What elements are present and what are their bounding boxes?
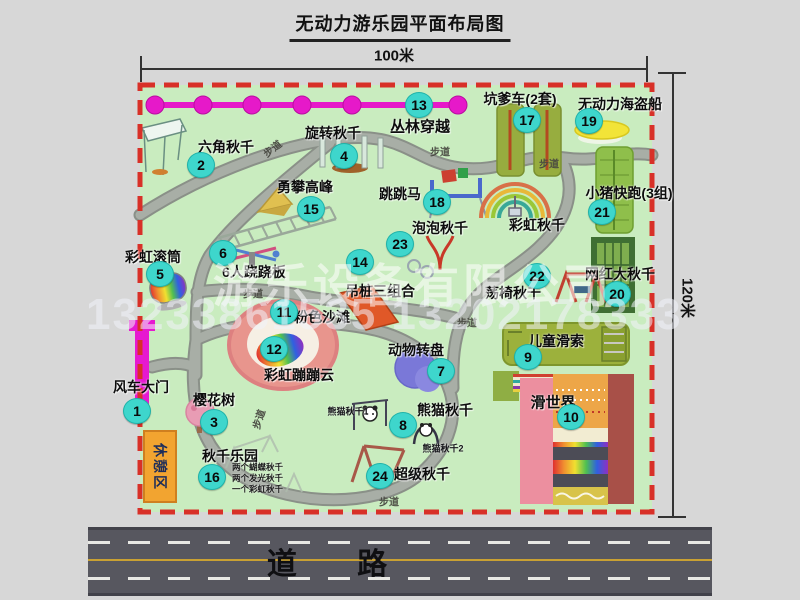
label-pink-beach: 粉色沙滩 [294, 307, 350, 327]
label-bubble-swing: 泡泡秋千 [412, 218, 468, 238]
rainbow-swing-arcs-icon [481, 184, 549, 218]
badge-14: 14 [346, 249, 374, 275]
dimension-top-tick-left [140, 56, 142, 82]
badge-15: 15 [297, 196, 325, 222]
badge-11: 11 [270, 299, 298, 325]
swing-park-detail-3: 一个彩虹秋千 [232, 484, 283, 495]
badge-7: 7 [427, 358, 455, 384]
park-map-page: 无动力游乐园平面布局图 100米 120米 [0, 0, 800, 600]
badge-13: 13 [405, 92, 433, 118]
footpath-label: 步道 [248, 407, 268, 431]
badge-9: 9 [514, 344, 542, 370]
badge-17: 17 [513, 107, 541, 133]
badge-1: 1 [123, 398, 151, 424]
rest-area-label: 休憩区 [150, 443, 170, 491]
badge-4: 4 [330, 143, 358, 169]
dimension-height-label: 120米 [678, 278, 699, 318]
label-seesaw: 6人跷跷板 [222, 262, 286, 282]
badge-6: 6 [209, 240, 237, 266]
label-super-swing: 超级秋千 [394, 464, 450, 484]
label-panda-swing: 熊猫秋千 [417, 400, 473, 420]
badge-20: 20 [603, 281, 631, 307]
label-climbing-peak: 勇攀高峰 [277, 177, 333, 197]
dimension-right-line [672, 72, 674, 518]
swing-park-details: 两个蝴蝶秋千 两个发光秋千 一个彩虹秋千 [232, 462, 283, 495]
badge-22: 22 [523, 263, 551, 289]
badge-16: 16 [198, 464, 226, 490]
hexagon-swing-icon [142, 119, 186, 175]
label-jungle-crossing: 丛林穿越 [390, 116, 450, 137]
label-animal-turntable: 动物转盘 [388, 340, 444, 360]
footpath-label: 步道 [243, 286, 263, 301]
label-cherry-tree: 樱花树 [193, 390, 235, 410]
swing-park-detail-2: 两个发光秋千 [232, 473, 283, 484]
label-panda-swing-2: 熊猫秋千2 [422, 442, 463, 455]
road-label: 道 路 [267, 539, 413, 583]
rest-area-box: 休憩区 [143, 430, 177, 503]
badge-5: 5 [146, 261, 174, 287]
label-jumping-horse: 跳跳马 [379, 184, 421, 204]
label-hanging-piles: 吊桩三组合 [345, 281, 415, 301]
label-rainbow-swing: 彩虹秋千 [509, 215, 565, 235]
badge-3: 3 [200, 409, 228, 435]
badge-2: 2 [187, 152, 215, 178]
footpath-label: 步道 [539, 156, 559, 171]
page-title: 无动力游乐园平面布局图 [290, 10, 511, 42]
dimension-right-tick-bottom [658, 516, 686, 518]
bubble-swing-icon [408, 236, 453, 278]
swing-park-detail-1: 两个蝴蝶秋千 [232, 462, 283, 473]
label-kengdie-car: 坑爹车(2套) [483, 89, 556, 109]
footpath-label: 步道 [260, 136, 285, 160]
footpath-label: 步道 [457, 315, 477, 330]
footpath-label: 步道 [430, 144, 450, 159]
dimension-top-line [140, 68, 648, 70]
badge-12: 12 [260, 336, 288, 362]
badge-24: 24 [366, 463, 394, 489]
badge-19: 19 [575, 108, 603, 134]
label-rainbow-cloud: 彩虹蹦蹦云 [264, 365, 334, 385]
badge-23: 23 [386, 231, 414, 257]
badge-8: 8 [389, 412, 417, 438]
badge-21: 21 [588, 199, 616, 225]
badge-18: 18 [423, 189, 451, 215]
dimension-width-label: 100米 [374, 45, 414, 66]
dimension-top-tick-right [646, 56, 648, 82]
label-panda-swing-1: 熊猫秋千1 [327, 405, 368, 418]
label-windmill-gate: 风车大门 [113, 377, 169, 397]
footpath-label: 步道 [379, 494, 399, 509]
label-rotating-swing: 旋转秋千 [305, 123, 361, 143]
dimension-right-tick-top [658, 72, 686, 74]
badge-10: 10 [557, 404, 585, 430]
